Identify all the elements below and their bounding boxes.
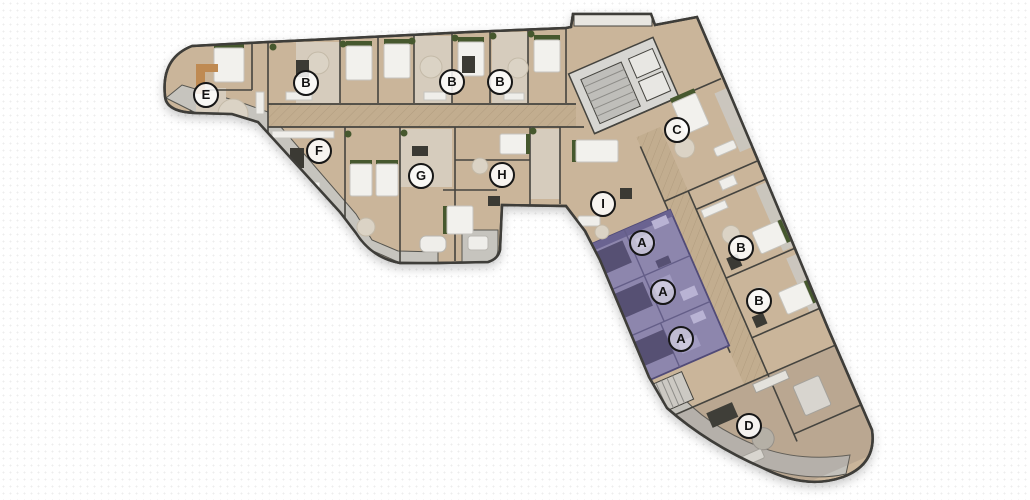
floor-plan-drawing: [0, 0, 1030, 500]
unit-badge-i[interactable]: I: [590, 191, 616, 217]
floor-plan-canvas: EBBBCFGHIAAABBD: [0, 0, 1030, 500]
unit-badge-a[interactable]: A: [650, 279, 676, 305]
unit-badge-a[interactable]: A: [629, 230, 655, 256]
unit-badge-e[interactable]: E: [193, 82, 219, 108]
unit-badge-b[interactable]: B: [293, 70, 319, 96]
unit-badge-b[interactable]: B: [746, 288, 772, 314]
unit-badge-f[interactable]: F: [306, 138, 332, 164]
unit-badge-b[interactable]: B: [439, 69, 465, 95]
unit-badge-g[interactable]: G: [408, 163, 434, 189]
corridor: [268, 104, 584, 127]
core-roof: [574, 14, 652, 26]
unit-badge-c[interactable]: C: [664, 117, 690, 143]
unit-badge-d[interactable]: D: [736, 413, 762, 439]
unit-badge-b[interactable]: B: [487, 69, 513, 95]
unit-badge-h[interactable]: H: [489, 162, 515, 188]
unit-badge-b[interactable]: B: [728, 235, 754, 261]
unit-badge-a[interactable]: A: [668, 326, 694, 352]
